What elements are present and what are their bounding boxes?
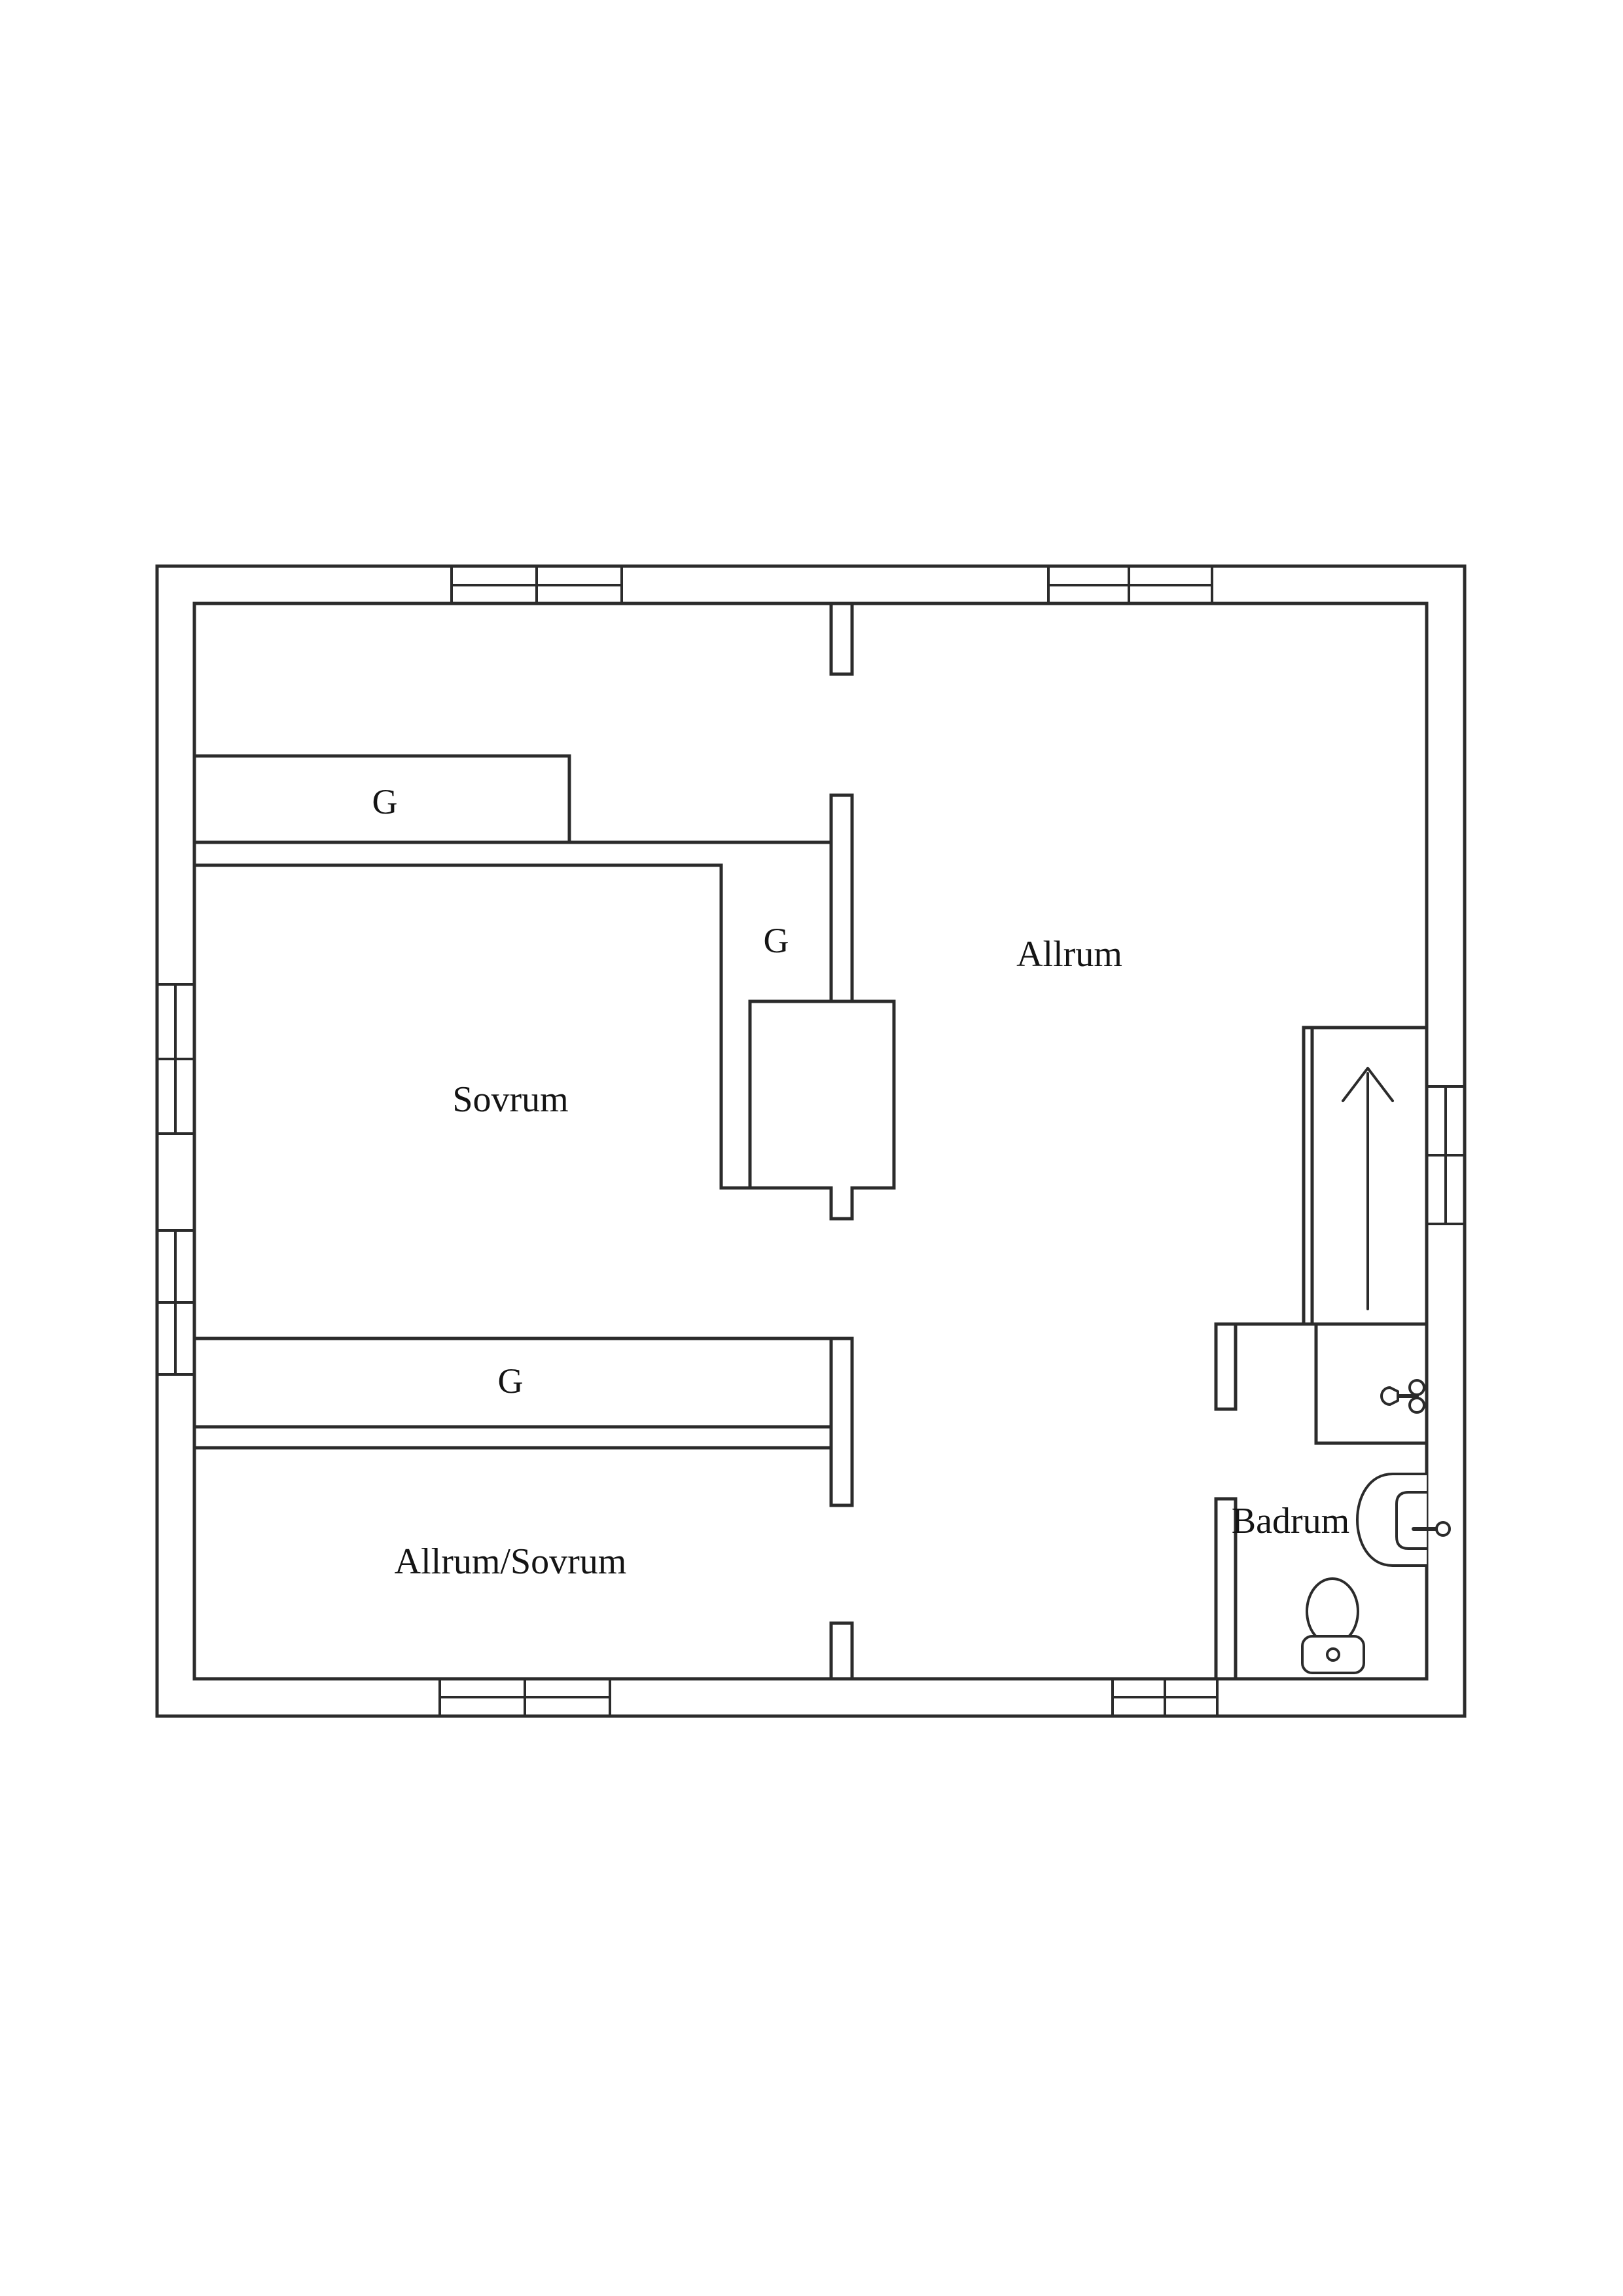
floor-plan-page: G G G Sovrum Allrum Allrum/Sovrum Badrum [0, 0, 1623, 2296]
windows [157, 566, 1465, 1716]
window-right [1427, 1086, 1465, 1224]
floor-plan-drawing: G G G Sovrum Allrum Allrum/Sovrum Badrum [0, 0, 1623, 2296]
tap-icon [1382, 1380, 1424, 1412]
closet-label-long: G [498, 1361, 524, 1401]
stairs-up-arrow-icon [1343, 1068, 1393, 1309]
window-top-left [452, 566, 622, 603]
room-label-allrum-sovrum: Allrum/Sovrum [395, 1541, 627, 1582]
window-bottom-left [440, 1679, 610, 1716]
window-left-upper [157, 984, 194, 1134]
window-top-right [1048, 566, 1212, 603]
sink-icon [1357, 1474, 1450, 1566]
labels: G G G Sovrum Allrum Allrum/Sovrum Badrum [372, 782, 1350, 1582]
window-left-lower [157, 1230, 194, 1374]
room-label-allrum: Allrum [1016, 934, 1122, 975]
toilet-icon [1302, 1579, 1364, 1673]
exterior-walls [157, 566, 1465, 1716]
room-label-sovrum: Sovrum [452, 1079, 568, 1120]
window-bottom-right [1113, 1679, 1217, 1716]
closet-label-middle: G [764, 921, 789, 960]
room-label-badrum: Badrum [1232, 1501, 1349, 1541]
closet-label-top-left: G [372, 782, 398, 821]
